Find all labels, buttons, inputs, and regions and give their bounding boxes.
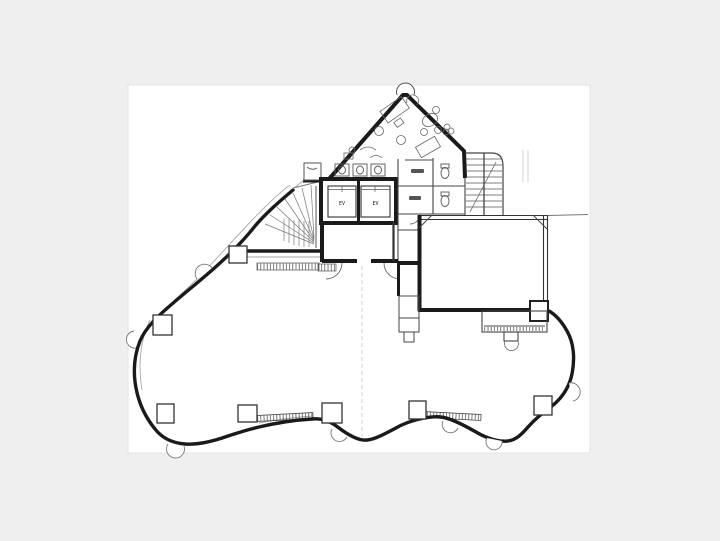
column	[238, 405, 257, 422]
column	[157, 404, 174, 423]
elevator-block: EV EV	[321, 179, 396, 223]
column	[409, 401, 426, 419]
illegible-room-label	[409, 196, 421, 200]
column	[322, 403, 342, 423]
machine-room	[418, 215, 549, 321]
column	[229, 246, 247, 263]
illegible-room-label	[411, 169, 424, 173]
image-viewer-canvas: EV EV	[0, 0, 720, 541]
column	[153, 315, 172, 335]
elevator-label: EV	[372, 201, 378, 207]
floor-plan-scan: EV EV	[0, 0, 720, 541]
elevator-label: EV	[339, 201, 345, 207]
column	[534, 396, 552, 415]
